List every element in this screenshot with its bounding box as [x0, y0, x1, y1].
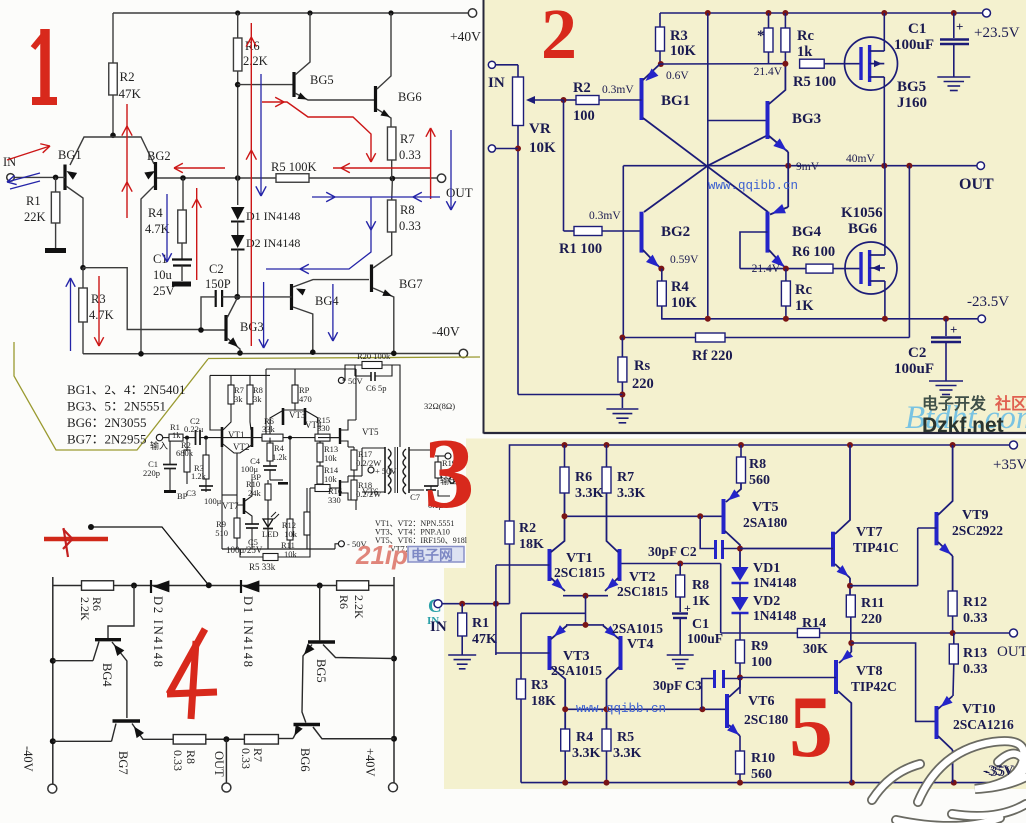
svg-text:BG4: BG4 — [100, 663, 114, 687]
svg-text:2.2K: 2.2K — [243, 54, 268, 68]
svg-text:R2: R2 — [573, 80, 591, 96]
svg-text:+23.5V: +23.5V — [974, 25, 1020, 41]
svg-text:0.3mV: 0.3mV — [602, 84, 634, 96]
svg-text:R12: R12 — [963, 595, 987, 610]
svg-text:BG6：2N3055: BG6：2N3055 — [67, 415, 146, 430]
svg-text:VT5: VT5 — [752, 500, 778, 515]
svg-text:100μ: 100μ — [204, 496, 222, 506]
svg-text:2SC2922: 2SC2922 — [952, 523, 1003, 538]
svg-text:30pF C3: 30pF C3 — [653, 678, 702, 693]
svg-text:BG6: BG6 — [398, 90, 422, 104]
svg-text:R5 100K: R5 100K — [271, 160, 317, 174]
svg-text:R7: R7 — [617, 470, 634, 485]
svg-text:Rc: Rc — [795, 282, 812, 298]
svg-text:33k: 33k — [262, 424, 276, 434]
svg-text:R6: R6 — [575, 470, 592, 485]
svg-text:2SC1815: 2SC1815 — [554, 565, 605, 580]
svg-text:BG4: BG4 — [792, 224, 822, 240]
svg-text:18K: 18K — [531, 694, 556, 709]
svg-text:*: * — [342, 376, 346, 386]
svg-text:10k: 10k — [324, 474, 338, 484]
svg-text:10u: 10u — [153, 268, 173, 282]
svg-text:R4: R4 — [576, 730, 593, 745]
svg-text:1K: 1K — [795, 298, 814, 314]
svg-text:VT3: VT3 — [563, 649, 589, 664]
svg-text:BG2: BG2 — [147, 149, 171, 163]
svg-text:-40V: -40V — [432, 324, 460, 339]
svg-text:VT2: VT2 — [233, 442, 250, 452]
svg-text:BG2: BG2 — [661, 224, 690, 240]
svg-text:D1 IN4148: D1 IN4148 — [246, 209, 300, 223]
svg-text:680k: 680k — [176, 448, 194, 458]
svg-text:220: 220 — [632, 376, 654, 392]
svg-text:3.3K: 3.3K — [572, 746, 601, 761]
svg-text:+: + — [684, 601, 691, 615]
svg-text:+ 50V: + 50V — [375, 466, 397, 476]
svg-text:1K: 1K — [692, 594, 710, 609]
svg-text:R8: R8 — [692, 578, 709, 593]
svg-text:www.qqibb.cn: www.qqibb.cn — [708, 179, 798, 193]
svg-text:D2 IN4148: D2 IN4148 — [151, 596, 165, 669]
svg-text:BG4: BG4 — [315, 294, 339, 308]
svg-text:25V: 25V — [153, 284, 175, 298]
svg-text:-23.5V: -23.5V — [967, 294, 1009, 310]
svg-text:560: 560 — [749, 473, 770, 488]
svg-text:R13: R13 — [963, 646, 987, 661]
svg-text:R14: R14 — [802, 616, 826, 631]
svg-text:VT7: VT7 — [222, 501, 239, 511]
svg-text:Dzkf.net: Dzkf.net — [922, 414, 1004, 437]
svg-text:BG7: BG7 — [116, 751, 130, 775]
svg-text:R3: R3 — [670, 28, 688, 44]
svg-text:0.33: 0.33 — [399, 148, 421, 162]
svg-text:2.2K: 2.2K — [78, 597, 92, 621]
svg-text:0.33: 0.33 — [963, 611, 988, 626]
svg-text:2SCA1216: 2SCA1216 — [953, 717, 1014, 732]
svg-text:18K: 18K — [519, 537, 544, 552]
svg-text:BG1、2、4：2N5401: BG1、2、4：2N5401 — [67, 382, 185, 397]
svg-text:21.4V: 21.4V — [754, 66, 783, 78]
svg-text:9mV: 9mV — [796, 161, 820, 173]
svg-text:OUT: OUT — [997, 644, 1026, 660]
svg-text:LED: LED — [262, 529, 279, 539]
svg-text:220p: 220p — [143, 468, 160, 478]
svg-text:2SA1015: 2SA1015 — [612, 621, 663, 636]
svg-text:D2 IN4148: D2 IN4148 — [246, 236, 300, 250]
svg-text:TIP41C: TIP41C — [853, 540, 899, 555]
svg-text:21ip: 21ip — [355, 540, 408, 570]
svg-text:R6 100: R6 100 — [792, 244, 835, 260]
svg-text:R20 100k: R20 100k — [357, 351, 391, 361]
svg-text:10K: 10K — [670, 43, 697, 59]
svg-text:R5: R5 — [617, 730, 634, 745]
svg-text:R2: R2 — [120, 69, 135, 84]
svg-text:BG6: BG6 — [298, 748, 312, 772]
svg-text:VD1: VD1 — [753, 561, 780, 576]
svg-text:220: 220 — [861, 612, 882, 627]
svg-text:2: 2 — [541, 0, 577, 74]
svg-text:TIP42C: TIP42C — [851, 679, 897, 694]
svg-text:100uF: 100uF — [687, 631, 723, 646]
svg-text:*: * — [757, 28, 765, 44]
svg-text:VR: VR — [529, 121, 551, 137]
svg-text:R5 33k: R5 33k — [249, 562, 276, 572]
svg-text:www.qqibb.cn: www.qqibb.cn — [576, 702, 666, 716]
svg-text:0.33: 0.33 — [963, 662, 988, 677]
svg-text:30K: 30K — [803, 642, 828, 657]
svg-text:C1: C1 — [908, 21, 926, 37]
svg-text:Rf 220: Rf 220 — [692, 348, 733, 364]
svg-text:VT10: VT10 — [962, 702, 995, 717]
svg-text:0.59V: 0.59V — [670, 254, 699, 266]
svg-text:R2: R2 — [519, 521, 536, 536]
svg-text:1N4148: 1N4148 — [753, 575, 797, 590]
svg-text:R4: R4 — [671, 279, 689, 295]
svg-text:VT7: VT7 — [856, 525, 882, 540]
svg-text:BG5: BG5 — [897, 79, 926, 95]
svg-text:0.33: 0.33 — [171, 750, 185, 771]
svg-text:100: 100 — [573, 108, 595, 124]
svg-text:100uF: 100uF — [894, 361, 934, 377]
svg-text:输入: 输入 — [150, 440, 168, 451]
svg-text:R1: R1 — [26, 194, 41, 208]
svg-text:5: 5 — [789, 679, 833, 776]
svg-text:VT4: VT4 — [627, 637, 653, 652]
svg-text:3.3K: 3.3K — [613, 746, 642, 761]
svg-text:470: 470 — [299, 394, 312, 404]
svg-text:C6 5p: C6 5p — [366, 383, 387, 393]
svg-text:BG1: BG1 — [661, 93, 690, 109]
svg-text:330: 330 — [328, 495, 341, 505]
svg-text:C2: C2 — [908, 345, 926, 361]
svg-text:R1: R1 — [472, 616, 489, 631]
svg-text:+: + — [950, 322, 957, 337]
svg-text:50V: 50V — [348, 376, 364, 386]
svg-text:D1 IN4148: D1 IN4148 — [241, 596, 255, 669]
svg-text:100μ/25V: 100μ/25V — [226, 545, 263, 555]
svg-text:2SC1815: 2SC1815 — [617, 584, 668, 599]
svg-text:VT1: VT1 — [566, 551, 592, 566]
svg-text:1k: 1k — [797, 44, 813, 60]
svg-text:+40V: +40V — [363, 748, 377, 777]
svg-text:IN: IN — [488, 75, 505, 91]
svg-text:BG5: BG5 — [314, 659, 328, 683]
svg-text:R6: R6 — [337, 595, 351, 609]
svg-text:VT1: VT1 — [228, 430, 245, 440]
svg-text:BG7: BG7 — [399, 277, 423, 291]
svg-text:C7: C7 — [410, 492, 420, 502]
svg-text:BP: BP — [177, 491, 188, 501]
svg-text:C2: C2 — [209, 262, 224, 276]
svg-text:3.3K: 3.3K — [575, 486, 604, 501]
svg-text:24k: 24k — [248, 488, 262, 498]
svg-text:VT3: VT3 — [289, 410, 306, 420]
svg-text:R3: R3 — [531, 678, 548, 693]
svg-text:R8: R8 — [400, 203, 415, 217]
svg-text:BG7：2N2955: BG7：2N2955 — [67, 432, 146, 447]
svg-text:3k: 3k — [234, 394, 243, 404]
svg-text:社区: 社区 — [994, 394, 1026, 413]
svg-text:OUT: OUT — [446, 185, 473, 200]
svg-text:0.22μ: 0.22μ — [184, 424, 204, 434]
svg-text:Rc: Rc — [797, 28, 814, 44]
svg-text:Rs: Rs — [634, 358, 650, 374]
svg-text:+: + — [956, 19, 963, 34]
svg-text:OUT: OUT — [959, 176, 994, 193]
svg-text:150P: 150P — [205, 277, 231, 291]
svg-text:3k: 3k — [253, 394, 262, 404]
svg-text:3.3K: 3.3K — [617, 486, 646, 501]
svg-text:R11: R11 — [861, 596, 884, 611]
svg-text:1k: 1k — [172, 430, 181, 440]
svg-text:R9: R9 — [751, 639, 768, 654]
svg-text:IN: IN — [430, 619, 447, 635]
svg-text:+40V: +40V — [450, 29, 481, 44]
svg-text:BG1: BG1 — [58, 148, 82, 162]
svg-text:K1056: K1056 — [841, 205, 883, 221]
svg-text:560: 560 — [751, 767, 772, 782]
svg-text:3: 3 — [424, 417, 475, 529]
svg-text:10K: 10K — [529, 140, 556, 156]
svg-text:22K: 22K — [24, 210, 46, 224]
svg-text:VT5: VT5 — [362, 427, 379, 437]
svg-text:R8: R8 — [749, 457, 766, 472]
svg-text:330: 330 — [317, 423, 330, 433]
svg-text:VT6: VT6 — [748, 694, 774, 709]
svg-text:R7: R7 — [400, 132, 415, 146]
svg-text:1.2k: 1.2k — [191, 471, 207, 481]
svg-text:C3: C3 — [186, 488, 196, 498]
svg-text:2.2K: 2.2K — [352, 595, 366, 619]
svg-text:100uF: 100uF — [894, 37, 934, 53]
svg-text:BG5: BG5 — [310, 73, 334, 87]
svg-text:2SC180: 2SC180 — [744, 712, 789, 727]
svg-text:R3: R3 — [91, 292, 106, 306]
svg-text:VD2: VD2 — [753, 594, 780, 609]
svg-text:-40V: -40V — [21, 746, 35, 772]
svg-text:2SA1015: 2SA1015 — [551, 663, 602, 678]
svg-text:0.33: 0.33 — [399, 219, 421, 233]
svg-text:R5 100: R5 100 — [793, 74, 836, 90]
svg-text:VT2: VT2 — [629, 570, 655, 585]
svg-text:R8: R8 — [184, 750, 198, 764]
svg-text:1N4148: 1N4148 — [753, 608, 797, 623]
svg-text:J160: J160 — [897, 95, 927, 111]
svg-text:-35V: -35V — [983, 763, 1014, 779]
svg-text:0.2/2W: 0.2/2W — [356, 489, 381, 499]
svg-text:10k: 10k — [284, 529, 298, 539]
svg-text:0.3mV: 0.3mV — [589, 210, 621, 222]
svg-text:2SA180: 2SA180 — [743, 515, 788, 530]
svg-text:R1 100: R1 100 — [559, 241, 602, 257]
svg-text:电子开发: 电子开发 — [922, 394, 987, 413]
svg-text:电子网: 电子网 — [411, 547, 453, 563]
svg-text:10k: 10k — [324, 453, 338, 463]
svg-text:+35V: +35V — [993, 457, 1026, 473]
svg-text:1.2k: 1.2k — [272, 452, 288, 462]
svg-text:47K: 47K — [119, 86, 142, 101]
svg-text:BG3、5：2N5551: BG3、5：2N5551 — [67, 399, 166, 414]
svg-text:47K: 47K — [472, 632, 497, 647]
svg-text:4.7K: 4.7K — [89, 308, 114, 322]
svg-text:R4: R4 — [148, 206, 163, 220]
svg-text:40mV: 40mV — [846, 153, 875, 165]
svg-text:BG3: BG3 — [792, 111, 821, 127]
svg-text:100: 100 — [751, 655, 772, 670]
svg-text:32Ω(8Ω): 32Ω(8Ω) — [424, 401, 455, 411]
svg-text:0.33: 0.33 — [239, 748, 253, 769]
svg-text:VT9: VT9 — [962, 508, 988, 523]
svg-text:21.4V: 21.4V — [752, 263, 781, 275]
svg-text:BG6: BG6 — [848, 221, 878, 237]
svg-text:OUT: OUT — [212, 751, 226, 777]
svg-text:VT8: VT8 — [856, 664, 882, 679]
svg-text:4.7K: 4.7K — [145, 222, 170, 236]
svg-text:10K: 10K — [671, 295, 698, 311]
svg-text:R10: R10 — [751, 751, 775, 766]
svg-text:0.6V: 0.6V — [666, 70, 689, 82]
svg-text:C1: C1 — [692, 617, 709, 632]
svg-text:30pF C2: 30pF C2 — [648, 544, 697, 559]
